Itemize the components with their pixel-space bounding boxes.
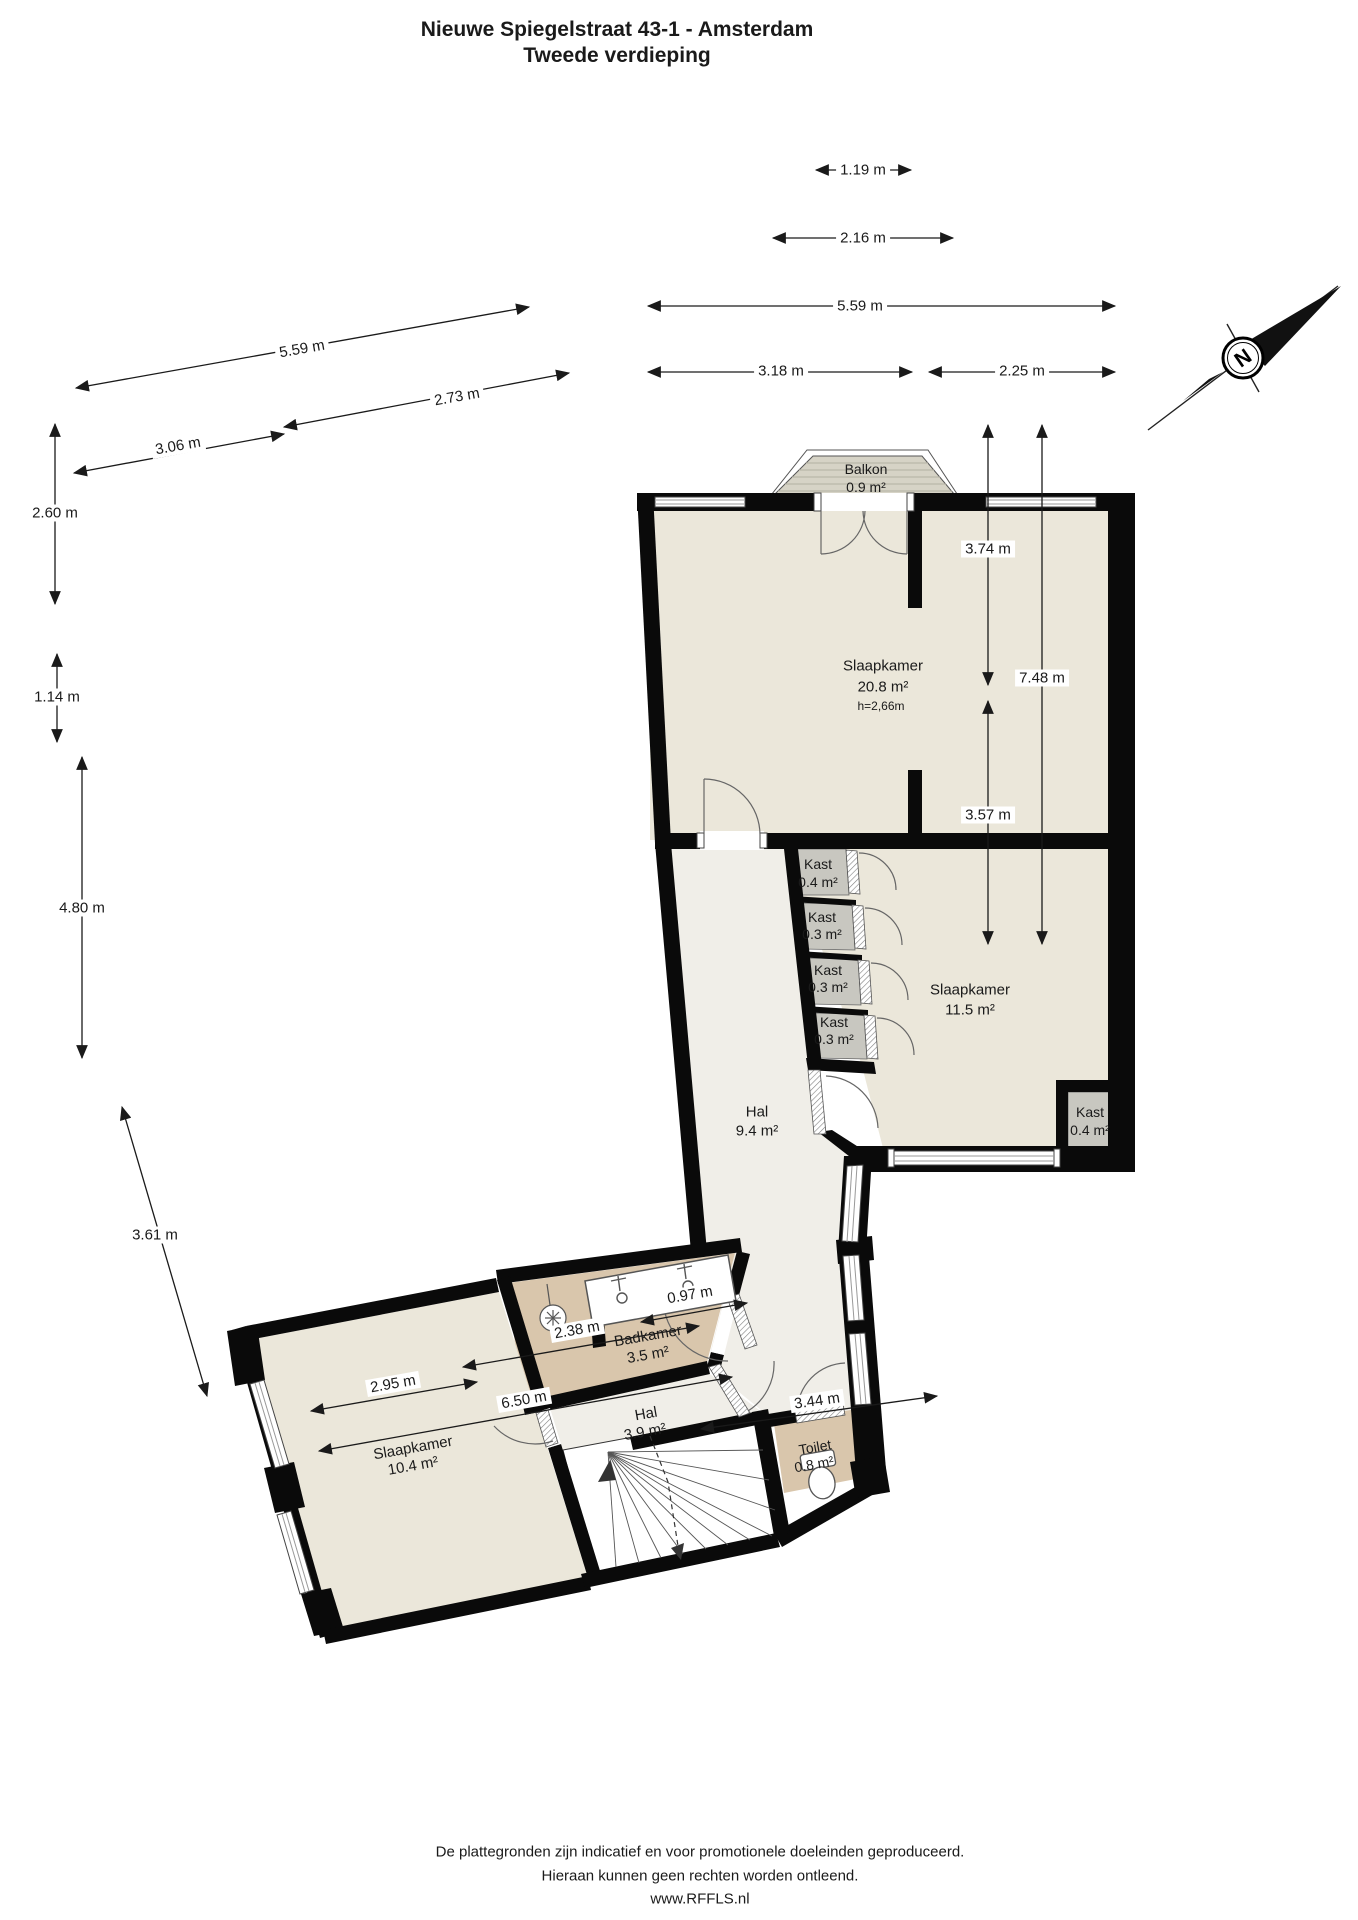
room-label-kast3: Kast [814,962,842,978]
dim-top-left-part: 3.18 m [754,363,808,380]
room-label-hal1: Hal [746,1104,769,1121]
dim-top-total: 5.59 m [833,298,887,315]
room-area-kast4: 0.3 m² [814,1031,854,1047]
room-label-balkon: Balkon [845,461,888,477]
room-label-kast5: Kast [1076,1104,1104,1120]
footer-disclaimer-line1: De plattegronden zijn indicatief en voor… [436,1844,965,1861]
room-label-kast2: Kast [808,909,836,925]
dim-left-v1: 2.60 m [28,505,82,522]
dim-right-1: 3.74 m [961,541,1015,558]
dim-bottom-total: 6.50 m [496,1387,552,1413]
dim-right-total: 7.48 m [1015,670,1069,687]
dim-bottom-stairs: 2.38 m [549,1317,605,1343]
dim-left-v3: 4.80 m [55,900,109,917]
room-area-kast1: 0.4 m² [798,874,838,890]
floorplan-page: N Nieuwe Spiegelstraat 43-1 - Amsterdam … [0,0,1358,1920]
dim-balcony-door: 1.19 m [836,162,890,179]
dim-left-diag-2: 2.73 m [429,384,485,410]
footer-disclaimer-line2: Hieraan kunnen geen rechten worden ontle… [542,1868,859,1885]
page-title: Nieuwe Spiegelstraat 43-1 - Amsterdam [421,18,814,42]
room-area-balkon: 0.9 m² [846,479,886,495]
page-subtitle: Tweede verdieping [523,44,711,68]
dim-top-right-part: 2.25 m [995,363,1049,380]
room-area-kast2: 0.3 m² [802,926,842,942]
dim-right-2: 3.57 m [961,807,1015,824]
room-area-slaapkamer2: 11.5 m² [945,1002,995,1019]
room-label-slaapkamer1: Slaapkamer [843,658,923,675]
dim-bottom-bedroom: 2.95 m [365,1371,421,1397]
room-area-slaapkamer1: 20.8 m² [858,679,909,696]
room-area-kast3: 0.3 m² [808,979,848,995]
dim-bottom-toilet: 0.97 m [662,1282,718,1308]
room-area-hal1: 9.4 m² [736,1123,779,1140]
dim-left-diag-total: 5.59 m [274,336,330,362]
room-label-slaapkamer2: Slaapkamer [930,982,1010,999]
footer-website: www.RFFLS.nl [650,1891,749,1908]
room-area-kast5: 0.4 m² [1070,1122,1110,1138]
room-area-hal2: 3.9 m² [623,1420,668,1444]
labels-layer: Nieuwe Spiegelstraat 43-1 - Amsterdam Tw… [0,0,1358,1920]
dim-left-v4: 3.61 m [128,1227,182,1244]
room-label-kast1: Kast [804,856,832,872]
dim-left-diag-3: 3.06 m [150,433,206,459]
dim-balcony-width: 2.16 m [836,230,890,247]
dim-bottom-right: 3.44 m [789,1389,845,1413]
dim-left-v2: 1.14 m [30,689,84,706]
room-height-slaapkamer1: h=2,66m [857,699,904,713]
room-label-kast4: Kast [820,1014,848,1030]
